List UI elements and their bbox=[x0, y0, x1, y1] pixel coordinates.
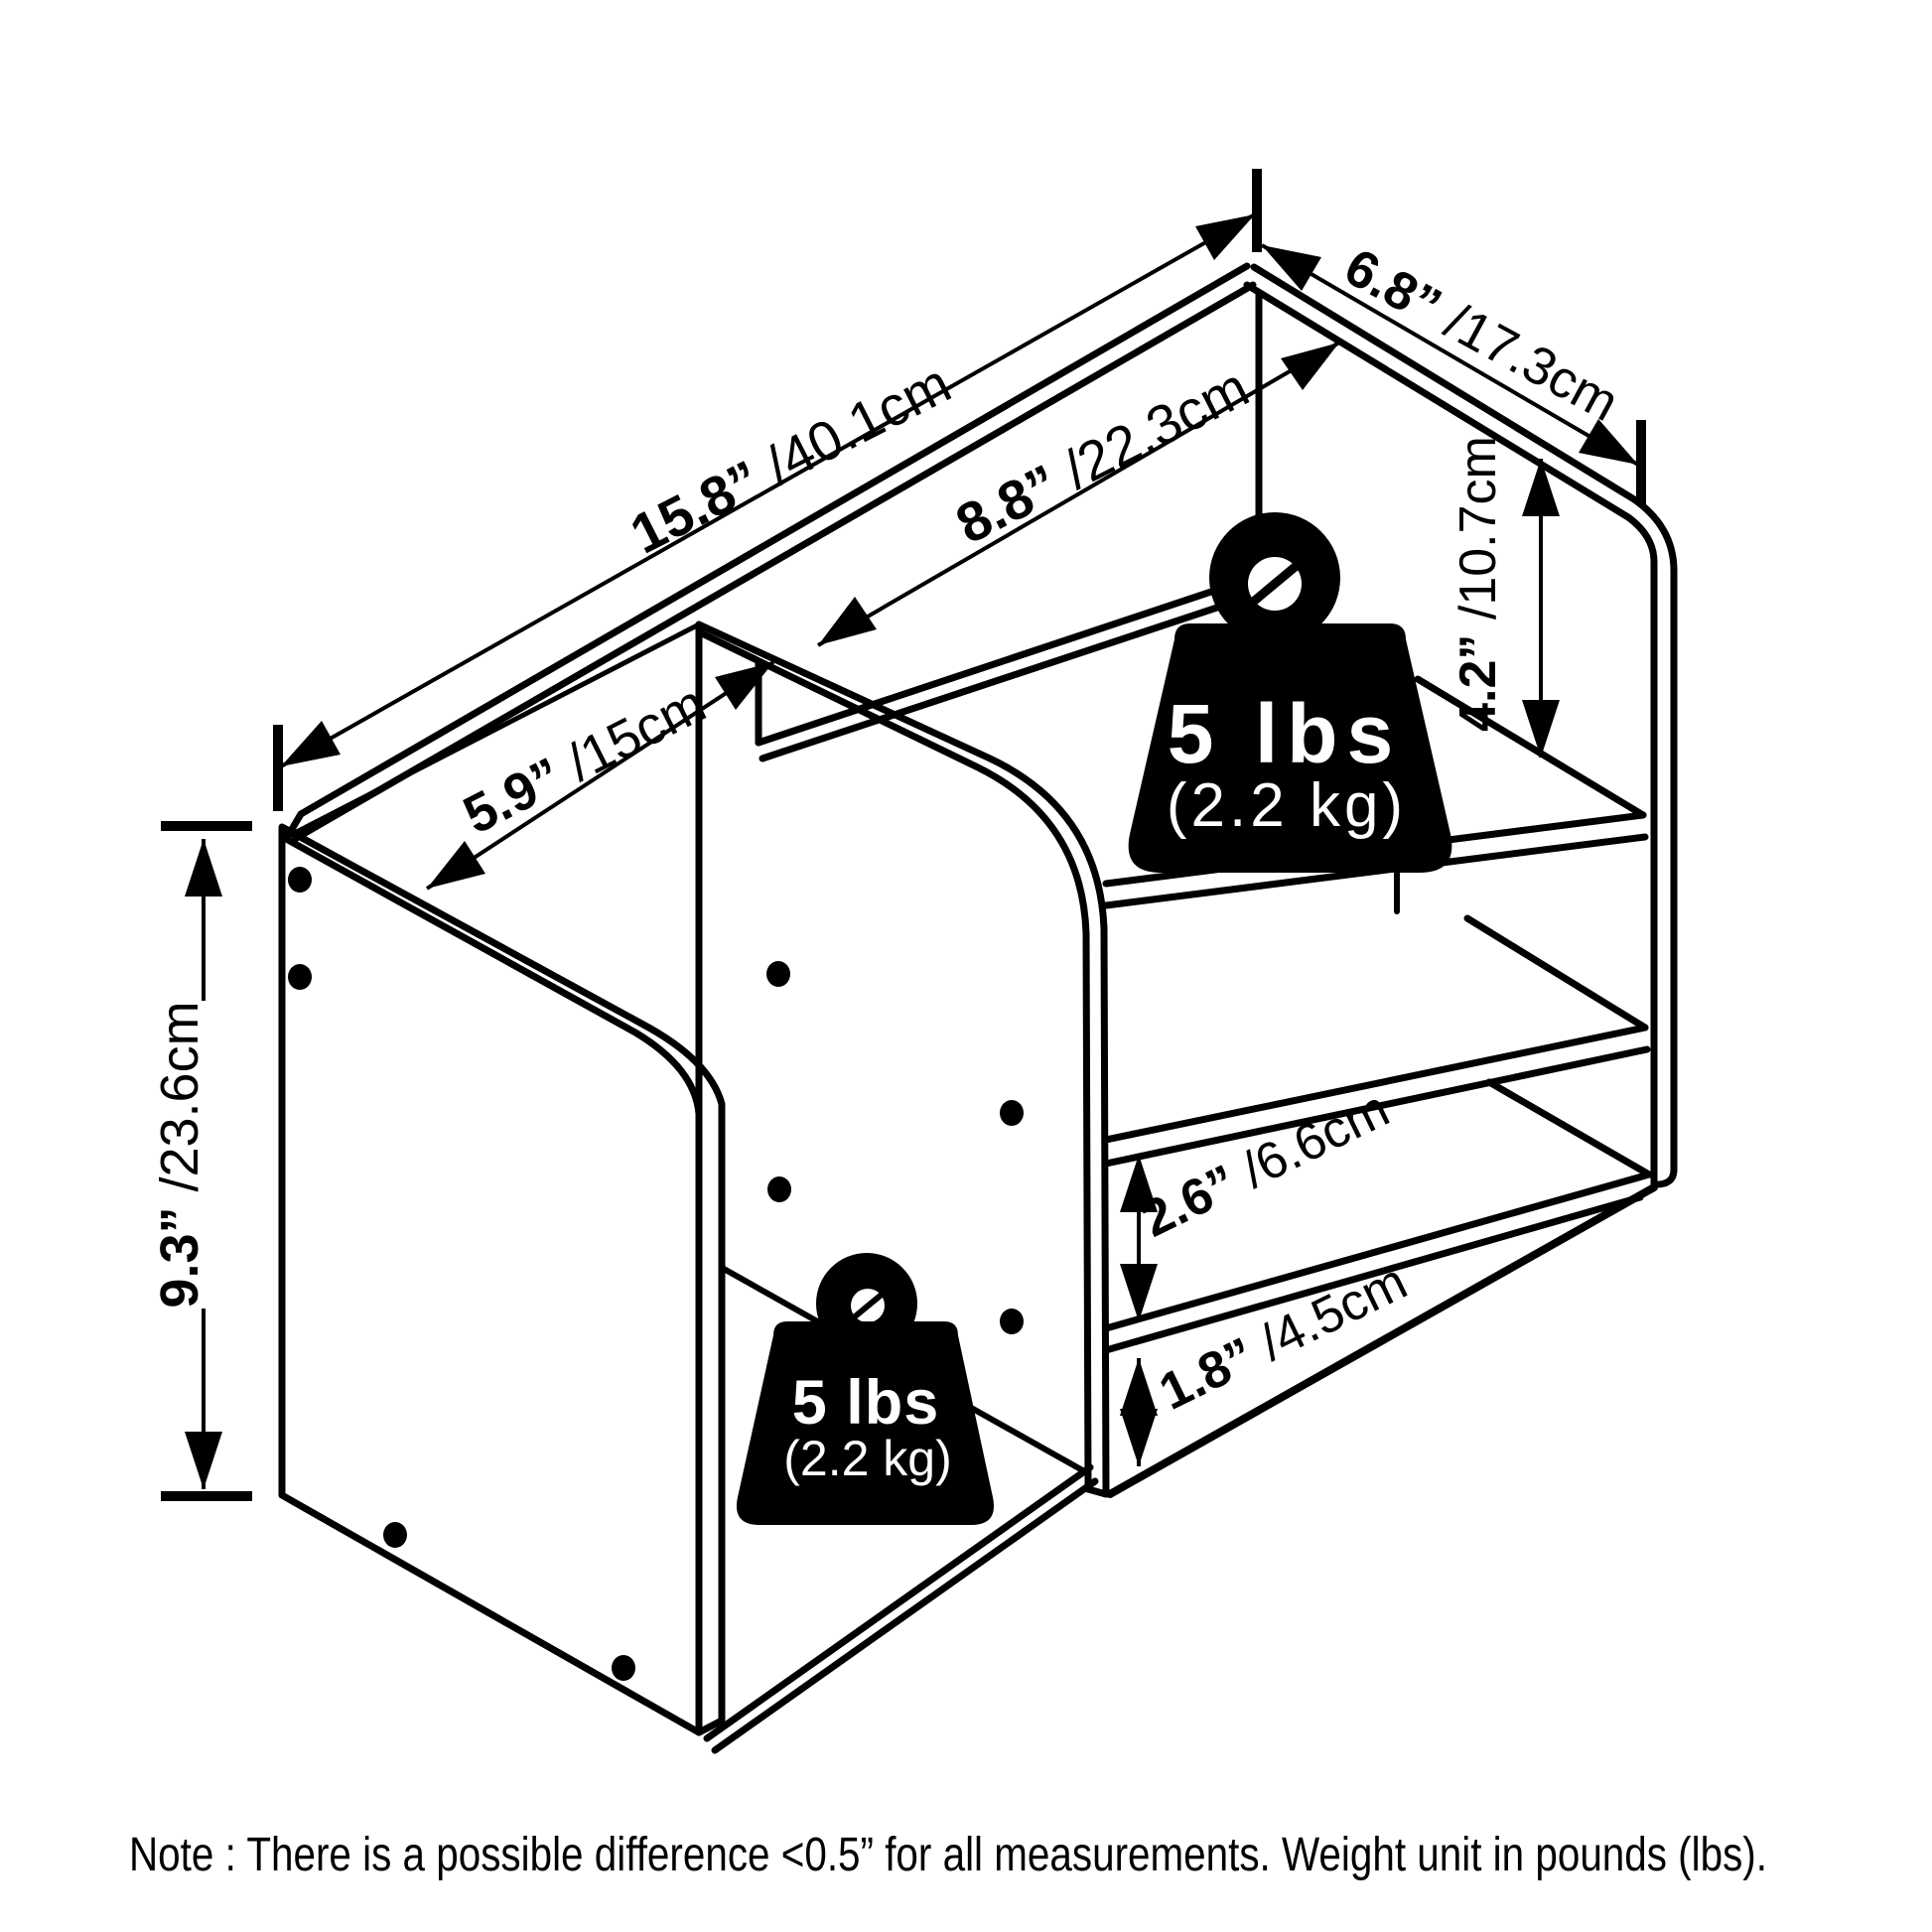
svg-text:(2.2 kg): (2.2 kg) bbox=[1167, 771, 1407, 840]
svg-text:(2.2 kg): (2.2 kg) bbox=[783, 1431, 952, 1486]
svg-text:9.3” /23.6cm: 9.3” /23.6cm bbox=[150, 1001, 209, 1308]
svg-text:5 lbs: 5 lbs bbox=[792, 1368, 940, 1438]
svg-text:4.2” /10.7cm: 4.2” /10.7cm bbox=[1449, 436, 1507, 732]
svg-text:5 lbs: 5 lbs bbox=[1168, 687, 1402, 780]
svg-text:Note : There is a possible dif: Note : There is a possible difference <0… bbox=[129, 1829, 1767, 1881]
